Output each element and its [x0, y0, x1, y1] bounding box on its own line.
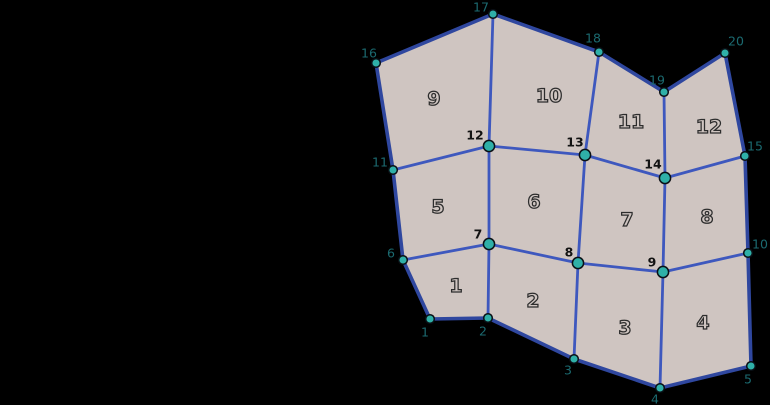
face-label-1: 1 — [449, 275, 462, 297]
vertex-label-14: 14 — [644, 157, 662, 172]
vertex-label-11: 11 — [372, 155, 388, 170]
vertex-9 — [657, 266, 668, 277]
vertex-8 — [572, 257, 583, 268]
vertex-label-19: 19 — [649, 73, 665, 88]
face-label-2: 2 — [526, 290, 539, 312]
vertex-label-10: 10 — [752, 237, 768, 252]
face-label-3: 3 — [618, 317, 631, 339]
vertex-label-15: 15 — [747, 139, 763, 154]
vertex-10 — [744, 249, 753, 258]
face-label-6: 6 — [527, 191, 540, 213]
vertex-11 — [389, 166, 398, 175]
vertex-18 — [595, 48, 604, 57]
vertex-5 — [747, 362, 756, 371]
vertex-13 — [579, 149, 590, 160]
vertex-label-13: 13 — [566, 135, 583, 150]
vertex-label-18: 18 — [585, 31, 601, 46]
face-label-5: 5 — [431, 196, 444, 218]
face-label-8: 8 — [700, 206, 713, 228]
vertex-label-20: 20 — [728, 34, 744, 49]
vertex-7 — [483, 238, 494, 249]
face-label-11: 11 — [618, 111, 644, 133]
vertex-label-9: 9 — [648, 255, 657, 270]
vertex-19 — [660, 88, 669, 97]
vertex-20 — [721, 49, 730, 58]
face-label-10: 10 — [536, 85, 562, 107]
face-label-12: 12 — [696, 116, 722, 138]
vertex-6 — [399, 256, 408, 265]
vertex-label-17: 17 — [473, 0, 489, 15]
vertex-label-12: 12 — [466, 128, 483, 143]
interior-edge-14-19 — [664, 92, 665, 178]
interior-edge-2-7 — [488, 244, 489, 318]
face-label-9: 9 — [427, 88, 440, 110]
vertex-label-16: 16 — [361, 46, 377, 61]
boundary-edge-1-2 — [430, 318, 488, 319]
vertex-12 — [483, 140, 494, 151]
figure-canvas: 1234567891011121314151617181920123456789… — [0, 0, 770, 405]
vertex-label-7: 7 — [474, 227, 483, 242]
vertex-label-6: 6 — [387, 246, 395, 261]
vertex-14 — [659, 172, 670, 183]
vertex-label-8: 8 — [565, 245, 574, 260]
vertex-label-5: 5 — [744, 372, 752, 387]
interior-edge-9-14 — [663, 178, 665, 272]
vertex-17 — [489, 10, 498, 19]
face-label-4: 4 — [696, 312, 709, 334]
vertex-label-2: 2 — [479, 324, 487, 339]
vertex-label-4: 4 — [651, 392, 659, 405]
mesh-svg: 1234567891011121314151617181920123456789… — [0, 0, 770, 405]
face-label-7: 7 — [620, 209, 633, 231]
vertex-1 — [426, 315, 435, 324]
vertex-2 — [484, 314, 493, 323]
vertex-label-1: 1 — [421, 325, 429, 340]
vertex-label-3: 3 — [564, 363, 572, 378]
